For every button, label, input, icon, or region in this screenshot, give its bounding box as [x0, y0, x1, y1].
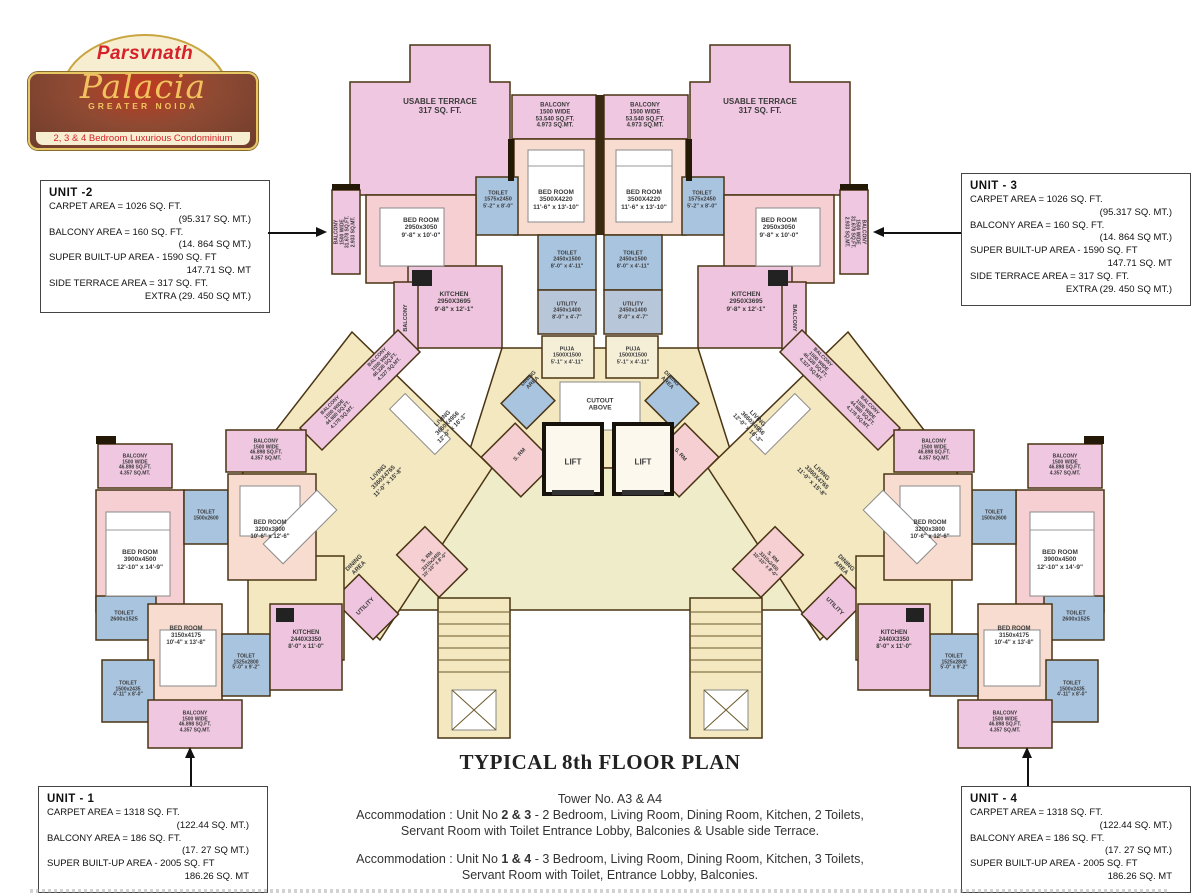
acc2-units: 1 & 4: [501, 852, 531, 866]
logo-tagline: 2, 3 & 4 Bedroom Luxurious Condominium: [36, 132, 250, 145]
unit-box-line: EXTRA (29. 450 SQ MT.): [49, 291, 261, 304]
unit-2-arrow-icon: [316, 227, 327, 237]
unit-box-line: (14. 864 SQ MT.): [970, 232, 1182, 245]
unit-2-lines: CARPET AREA = 1026 SQ. FT.(95.317 SQ. MT…: [49, 201, 261, 304]
unit-2-leader-line: [268, 232, 316, 234]
acc2-line2: Servant Room with Toilet, Entrance Lobby…: [462, 868, 758, 882]
unit-box-line: SUPER BUILT-UP AREA - 1590 SQ. FT: [970, 245, 1182, 258]
acc1-units: 2 & 3: [501, 808, 531, 822]
unit-2-title: UNIT -2: [49, 187, 261, 199]
unit-2-info-box: UNIT -2 CARPET AREA = 1026 SQ. FT.(95.31…: [40, 180, 270, 313]
logo-location: GREATER NOIDA: [30, 101, 256, 111]
unit-box-line: (95.317 SQ. MT.): [49, 214, 261, 227]
plan-title: TYPICAL 8th FLOOR PLAN: [0, 750, 1200, 775]
fine-print-strip: [30, 889, 1170, 893]
acc2-rest: - 3 Bedroom, Living Room, Dining Room, K…: [531, 852, 864, 866]
tower-number: Tower No. A3 & A4: [120, 792, 1100, 808]
unit-3-info-box: UNIT - 3 CARPET AREA = 1026 SQ. FT.(95.3…: [961, 173, 1191, 306]
accommodation-units-1-4: Accommodation : Unit No 1 & 4 - 3 Bedroo…: [120, 852, 1100, 883]
unit-box-line: SIDE TERRACE AREA = 317 SQ. FT.: [49, 278, 261, 291]
unit-box-line: CARPET AREA = 1026 SQ. FT.: [49, 201, 261, 214]
unit-3-arrow-icon: [873, 227, 884, 237]
unit-box-line: SUPER BUILT-UP AREA - 1590 SQ. FT: [49, 252, 261, 265]
unit-box-line: EXTRA (29. 450 SQ MT.): [970, 284, 1182, 297]
unit-box-line: 147.71 SQ. MT: [970, 258, 1182, 271]
unit-box-line: BALCONY AREA = 160 SQ. FT.: [970, 220, 1182, 233]
acc1-rest: - 2 Bedroom, Living Room, Dining Room, K…: [531, 808, 864, 822]
floor-plan-page: USABLE TERRACE 317 SQ. FT.USABLE TERRACE…: [0, 0, 1200, 896]
acc2-prefix: Accommodation : Unit No: [356, 852, 501, 866]
unit-box-line: CARPET AREA = 1026 SQ. FT.: [970, 194, 1182, 207]
unit-box-line: (95.317 SQ. MT.): [970, 207, 1182, 220]
logo-body: Palacia GREATER NOIDA 2, 3 & 4 Bedroom L…: [28, 72, 258, 150]
unit-box-line: BALCONY AREA = 160 SQ. FT.: [49, 227, 261, 240]
unit-box-line: SIDE TERRACE AREA = 317 SQ. FT.: [970, 271, 1182, 284]
unit-box-line: 147.71 SQ. MT: [49, 265, 261, 278]
unit-box-line: (14. 864 SQ MT.): [49, 239, 261, 252]
unit-3-lines: CARPET AREA = 1026 SQ. FT.(95.317 SQ. MT…: [970, 194, 1182, 297]
accommodation-units-2-3: Accommodation : Unit No 2 & 3 - 2 Bedroo…: [120, 808, 1100, 839]
logo-brand: Parsvnath: [62, 36, 228, 65]
acc1-line2: Servant Room with Toilet Entrance Lobby,…: [401, 824, 819, 838]
unit-3-leader-line: [884, 232, 961, 234]
acc1-prefix: Accommodation : Unit No: [356, 808, 501, 822]
logo: Parsvnath Palacia GREATER NOIDA 2, 3 & 4…: [28, 34, 258, 148]
unit-3-title: UNIT - 3: [970, 180, 1182, 192]
